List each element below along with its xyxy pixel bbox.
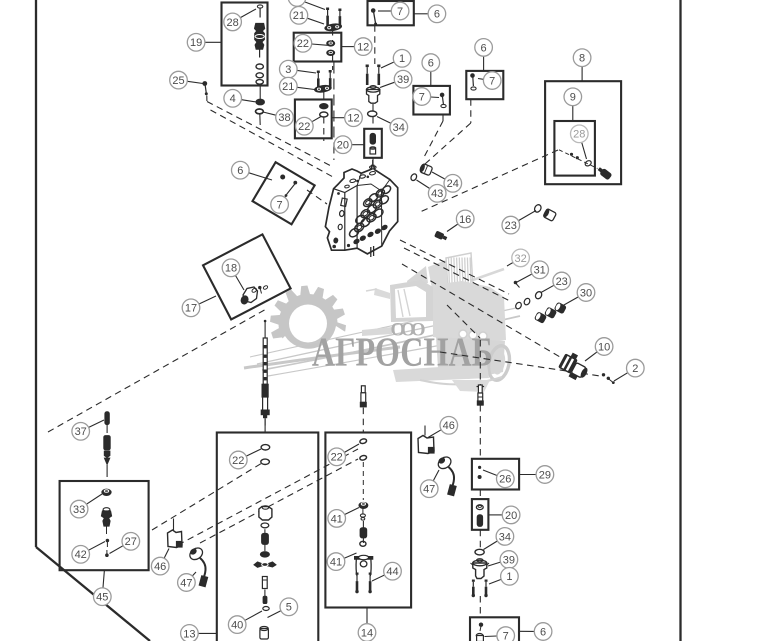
- svg-text:26: 26: [499, 474, 511, 486]
- svg-text:7: 7: [419, 91, 425, 103]
- svg-text:46: 46: [443, 420, 455, 432]
- svg-text:7: 7: [277, 199, 283, 211]
- svg-text:25: 25: [172, 75, 184, 87]
- svg-text:3: 3: [285, 64, 291, 76]
- svg-text:42: 42: [75, 549, 87, 561]
- svg-text:21: 21: [293, 10, 305, 22]
- svg-text:23: 23: [505, 220, 517, 232]
- svg-text:5: 5: [286, 602, 292, 614]
- svg-text:20: 20: [337, 140, 349, 152]
- svg-text:1: 1: [399, 53, 405, 65]
- svg-text:39: 39: [503, 554, 515, 566]
- svg-text:47: 47: [423, 484, 435, 496]
- svg-text:22: 22: [232, 455, 244, 467]
- svg-text:28: 28: [226, 17, 238, 29]
- svg-text:7: 7: [503, 631, 509, 641]
- svg-text:32: 32: [514, 253, 526, 265]
- svg-text:17: 17: [185, 303, 197, 315]
- svg-text:27: 27: [125, 536, 137, 548]
- svg-text:21: 21: [282, 81, 294, 93]
- svg-text:40: 40: [231, 620, 243, 632]
- svg-text:43: 43: [431, 188, 443, 200]
- svg-text:31: 31: [534, 265, 546, 277]
- svg-text:45: 45: [96, 592, 108, 604]
- svg-text:46: 46: [154, 561, 166, 573]
- svg-text:33: 33: [73, 504, 85, 516]
- svg-text:28: 28: [573, 129, 585, 141]
- svg-text:22: 22: [297, 38, 309, 50]
- svg-text:16: 16: [459, 214, 471, 226]
- svg-text:14: 14: [361, 627, 373, 639]
- svg-text:7: 7: [489, 75, 495, 87]
- svg-text:12: 12: [347, 113, 359, 125]
- svg-text:10: 10: [598, 341, 610, 353]
- svg-text:6: 6: [237, 165, 243, 177]
- svg-text:34: 34: [393, 122, 405, 134]
- svg-text:23: 23: [556, 276, 568, 288]
- svg-text:41: 41: [330, 557, 342, 569]
- svg-text:39: 39: [397, 74, 409, 86]
- svg-text:38: 38: [278, 112, 290, 124]
- svg-text:13: 13: [183, 628, 195, 640]
- svg-text:34: 34: [499, 531, 511, 543]
- svg-text:2: 2: [632, 363, 638, 375]
- svg-text:6: 6: [428, 58, 434, 70]
- svg-text:24: 24: [447, 178, 459, 190]
- svg-text:41: 41: [331, 513, 343, 525]
- svg-text:9: 9: [570, 92, 576, 104]
- svg-text:1: 1: [506, 571, 512, 583]
- svg-text:44: 44: [386, 566, 398, 578]
- svg-text:47: 47: [180, 577, 192, 589]
- svg-text:7: 7: [397, 6, 403, 18]
- svg-text:37: 37: [75, 426, 87, 438]
- svg-text:18: 18: [225, 263, 237, 275]
- svg-text:30: 30: [580, 287, 592, 299]
- svg-text:22: 22: [331, 452, 343, 464]
- svg-text:12: 12: [357, 42, 369, 54]
- svg-text:22: 22: [298, 121, 310, 133]
- svg-text:4: 4: [230, 93, 236, 105]
- svg-text:19: 19: [190, 37, 202, 49]
- svg-text:8: 8: [579, 53, 585, 65]
- svg-text:6: 6: [481, 42, 487, 54]
- svg-text:АГРОСНАБ: АГРОСНАБ: [312, 328, 493, 374]
- svg-text:6: 6: [540, 626, 546, 638]
- svg-text:29: 29: [539, 469, 551, 481]
- svg-text:6: 6: [434, 9, 440, 21]
- svg-text:20: 20: [505, 510, 517, 522]
